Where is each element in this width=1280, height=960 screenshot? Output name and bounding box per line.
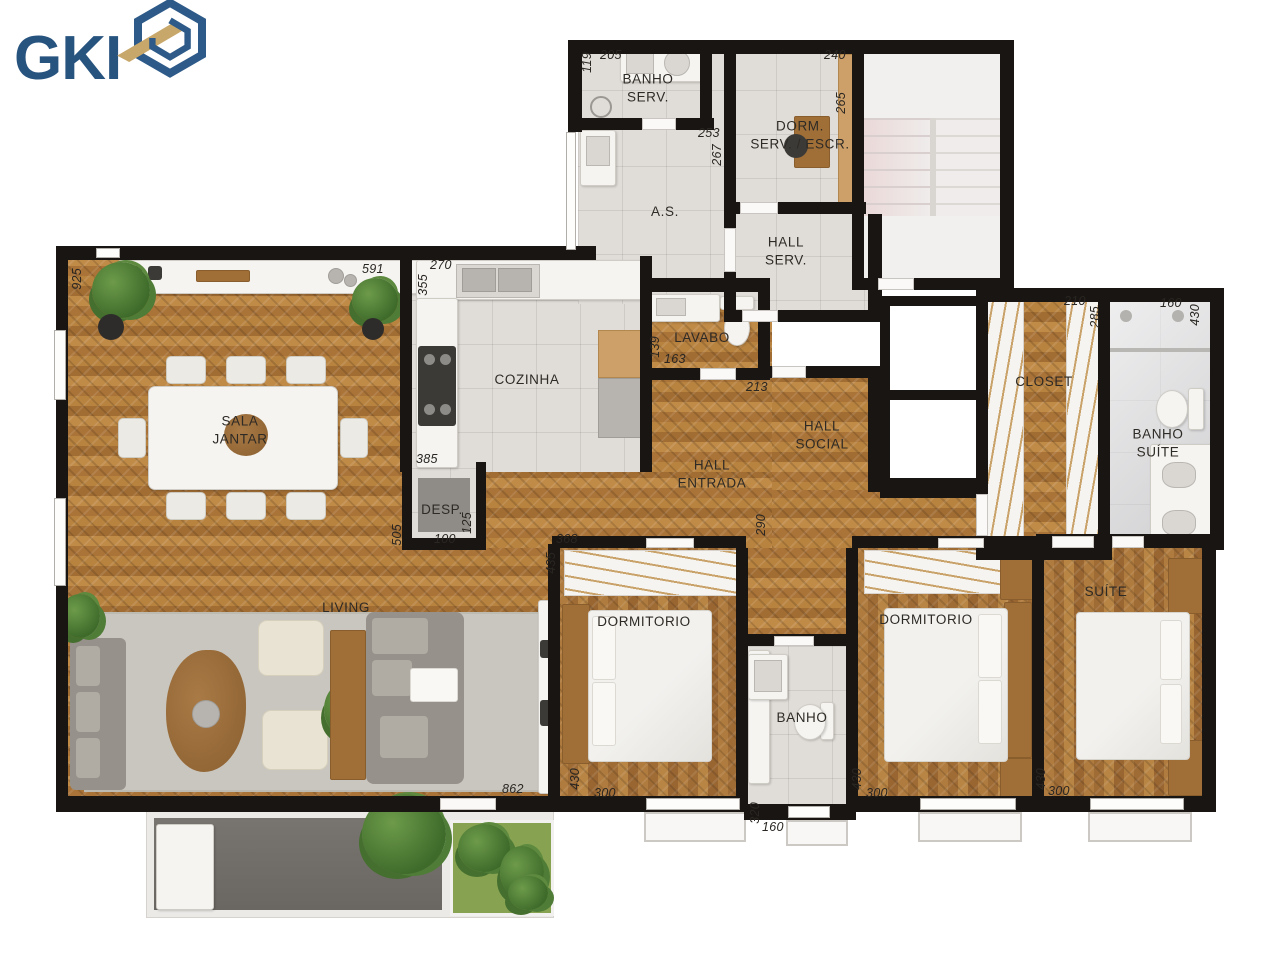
stove-burner (440, 404, 451, 415)
room-label-banho-suite: BANHO SUÍTE (1132, 425, 1183, 460)
wall (476, 462, 486, 546)
wall (868, 478, 986, 492)
shower-head (1120, 310, 1132, 322)
stairs-flight-right (936, 118, 1002, 216)
dim-living-w: 862 (502, 782, 524, 796)
wall (868, 366, 882, 492)
room-label-hall-social: HALL SOCIAL (795, 417, 848, 452)
window (96, 248, 120, 258)
room-label-hall-entrada: HALL ENTRADA (678, 456, 747, 491)
sofa-cushion (76, 646, 100, 686)
wall (548, 544, 560, 812)
plant-pot (98, 314, 124, 340)
laundry-basin (586, 136, 610, 166)
dim-banho-serv-top: 205 (600, 48, 622, 62)
plant-pot (362, 318, 384, 340)
door-gap (772, 366, 806, 378)
floorplan-canvas: GKI (0, 0, 1280, 960)
pillow (978, 680, 1002, 744)
dim-dorm2-h: 430 (850, 768, 864, 790)
room-label-dormitorio2: DORMITORIO (879, 611, 973, 629)
door-gap (1052, 536, 1094, 548)
room-label-hall-serv: HALL SERV. (765, 233, 807, 268)
window (54, 330, 66, 400)
console-table (330, 630, 366, 780)
dim-dorm1-top: 368 (556, 532, 578, 546)
room-label-cozinha: COZINHA (495, 371, 560, 389)
room-label-closet: CLOSET (1015, 373, 1073, 391)
dim-banho-suite-right: 430 (1188, 304, 1202, 326)
dim-as-h: 267 (710, 144, 724, 166)
wall (568, 118, 714, 130)
dim-desp-left: 505 (390, 524, 404, 546)
dim-cozinha-left: 355 (416, 274, 430, 296)
dim-cozinha-top: 270 (430, 258, 452, 272)
plant (352, 278, 398, 322)
wall (1098, 296, 1110, 538)
window (54, 498, 66, 586)
pillow (1160, 620, 1182, 680)
dim-dorm1-w: 300 (594, 786, 616, 800)
dim-dorm2-w: 300 (866, 786, 888, 800)
dim-banho-serv-left: 119 (580, 52, 594, 73)
balcony-suite (1088, 812, 1192, 842)
wall (1202, 546, 1216, 812)
dim-suite-w: 300 (1048, 784, 1070, 798)
floor-vestibule (744, 548, 850, 648)
window (788, 806, 830, 818)
window (566, 132, 576, 250)
sofa-cushion (380, 716, 428, 758)
dim-closet-right: 285 (1088, 306, 1102, 328)
dim-lavabo-w: 163 (664, 352, 686, 366)
door-gap (976, 494, 988, 536)
stairs-divider (930, 118, 936, 216)
dim-hall-entrada-right: 213 (746, 380, 768, 394)
garden-plant (508, 876, 548, 910)
dim-dorm-serv-top: 240 (824, 48, 846, 62)
stove-burner (424, 354, 435, 365)
pillow (1160, 684, 1182, 744)
wall (640, 278, 770, 292)
banho-sink-basin (754, 660, 782, 692)
room-label-banho: BANHO (776, 709, 827, 727)
toilet-bowl (1156, 390, 1188, 428)
vanity-sink (1162, 510, 1196, 536)
armchair (258, 620, 324, 676)
balcony-banho (786, 820, 848, 846)
room-label-living: LIVING (322, 599, 370, 617)
wall (976, 546, 1112, 560)
room-label-dormitorio1: DORMITORIO (597, 613, 691, 631)
terrace-door-gap (440, 798, 496, 810)
door-gap (700, 368, 736, 380)
dorm2-headboard (1004, 602, 1032, 758)
gki-logo-text: GKI (14, 24, 121, 93)
room-label-suite: SUÍTE (1085, 583, 1128, 601)
shower-glass (1110, 348, 1210, 352)
dorm1-headboard (562, 604, 590, 764)
room-label-banho-serv: BANHO SERV. (622, 70, 673, 105)
wall (724, 46, 736, 208)
sofa-cushion (76, 738, 100, 778)
toilet-tank (1188, 388, 1204, 430)
dim-desp-top: 385 (416, 452, 438, 466)
door-gap (642, 118, 676, 130)
dining-chair (286, 356, 326, 384)
door-gap (724, 228, 736, 272)
dining-chair (340, 418, 368, 458)
plant (92, 262, 150, 318)
balcony-dorm2 (918, 812, 1022, 842)
wall (852, 46, 864, 286)
kitchen-sink-basin (498, 268, 532, 292)
dim-banho-w: 160 (762, 820, 784, 834)
wall (1210, 288, 1224, 550)
dining-chair (166, 356, 206, 384)
pillow (592, 682, 616, 746)
dim-banho-suite-top: 160 (1160, 296, 1182, 310)
room-label-desp: DESP. (421, 501, 463, 519)
sideboard-tray (196, 270, 250, 282)
dim-dorm1-h: 430 (568, 768, 582, 790)
door-gap (740, 202, 778, 214)
dim-sala-top: 591 (362, 262, 384, 276)
dim-desp-h: 125 (460, 512, 474, 534)
dim-as-w: 253 (698, 126, 720, 140)
window (920, 798, 1016, 810)
dim-lavabo-left: 139 (648, 336, 662, 358)
gki-logo: GKI (14, 28, 121, 90)
door-gap (1112, 536, 1144, 548)
terrace-bench (156, 824, 214, 910)
room-label-sala-jantar: SALA JANTAR (212, 412, 267, 447)
balcony-dorm1 (644, 812, 746, 842)
sofa-cushion (372, 618, 428, 654)
door-gap (878, 278, 914, 290)
sideboard-decor (148, 266, 162, 280)
dining-chair (226, 356, 266, 384)
vanity-sink (1162, 462, 1196, 488)
armchair (262, 710, 328, 770)
door-gap (774, 636, 814, 646)
dining-chair (118, 418, 146, 458)
dim-suite-h: 430 (1034, 768, 1048, 790)
door-gap (938, 538, 984, 548)
wall (700, 40, 712, 128)
stairs-flight-left (864, 118, 930, 216)
sofa-throw (410, 668, 458, 702)
dorm1-wardrobe (564, 550, 738, 596)
sideboard-plate (328, 268, 344, 284)
dim-closet-top: 210 (1064, 294, 1086, 308)
dim-dorm1-left: 435 (544, 552, 558, 574)
pillow (978, 614, 1002, 678)
door-gap (742, 310, 778, 322)
sofa-cushion (76, 692, 100, 732)
floor-closet-mid (1022, 300, 1066, 552)
kitchen-cabinet-wood (598, 330, 644, 378)
dim-dorm-serv-right: 265 (834, 92, 848, 114)
dim-banho-h: 320 (748, 802, 762, 824)
wall (868, 214, 882, 322)
sideboard-plate (344, 274, 357, 287)
stove-burner (440, 354, 451, 365)
shower-drain (590, 96, 612, 118)
dim-desp-w: 100 (434, 532, 456, 546)
window (1090, 798, 1184, 810)
stove-burner (424, 404, 435, 415)
dining-chair (166, 492, 206, 520)
dining-chair (286, 492, 326, 520)
window (646, 798, 740, 810)
wall (568, 40, 1014, 54)
door-gap (646, 538, 694, 548)
room-label-dorm-serv: DORM. SERV. / ESCR. (750, 117, 849, 152)
dim-sala-left: 925 (70, 268, 84, 290)
coffee-table-tray (192, 700, 220, 728)
dining-chair (226, 492, 266, 520)
shower-head (1172, 310, 1184, 322)
closet-wardrobe-left (986, 300, 1024, 554)
gki-cube-icon (130, 0, 210, 78)
kitchen-sink-basin (462, 268, 496, 292)
lavabo-basin (656, 298, 686, 316)
wall (400, 256, 412, 472)
dim-corridor: 290 (754, 514, 768, 536)
wall (736, 548, 748, 812)
kitchen-cabinet-gray (598, 378, 644, 438)
room-label-lavabo: LAVABO (674, 329, 730, 347)
wall (1000, 40, 1014, 290)
room-label-as: A.S. (651, 203, 679, 221)
sofa-cushion (372, 660, 412, 696)
